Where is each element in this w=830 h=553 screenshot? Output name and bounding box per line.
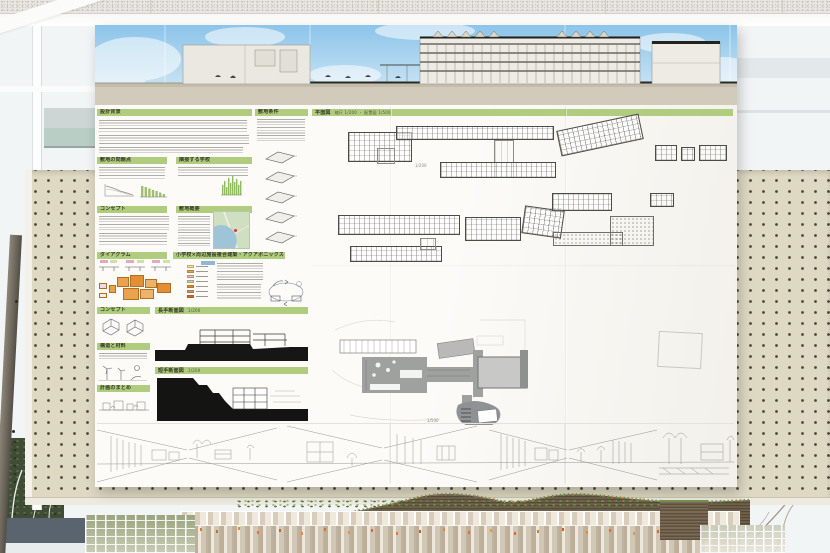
ceiling-tile-gap (605, 0, 606, 14)
section-title: 短手断面図 (158, 368, 184, 374)
diagram-block (123, 288, 139, 300)
floor-plan (420, 238, 436, 250)
pole-bolt (15, 300, 18, 303)
floor-plan (338, 215, 460, 235)
section-header-cross-section: 短手断面図1/200 (155, 367, 308, 374)
floor-plan-small (650, 193, 674, 207)
pegboard-left-edge (25, 170, 32, 505)
floor-plan-grid (553, 232, 623, 246)
plan-scale-subtitle: 縮尺 1/200 ・ 配置図 1/500 (335, 110, 391, 115)
section-title: 敷地条件 (258, 109, 279, 115)
legend-color-chip (187, 280, 194, 283)
environment-sketches (99, 363, 147, 382)
legend-color-chip (187, 290, 194, 293)
interior-perspective-strip (97, 423, 734, 483)
presentation-board: 設計背景 敷地条件 平面図縮尺 1/200 ・ 配置図 1/500 敷地の問題点… (95, 25, 737, 487)
legend-label-line (196, 281, 208, 282)
body-text (99, 135, 249, 144)
body-text (99, 147, 243, 155)
legend-label-line (196, 296, 208, 297)
plan-scale-label: 1/200 (415, 164, 427, 168)
legend-color-chip (187, 295, 194, 298)
right-wall-band (735, 58, 830, 78)
model-roof-planting (235, 499, 705, 508)
legend-row (187, 290, 211, 293)
section-header-concept: コンセプト (97, 206, 167, 213)
ceiling-tile-gap (378, 0, 379, 14)
hillside-section-drawing (155, 376, 308, 423)
legend-color-chip (187, 275, 194, 278)
right-window-frame (735, 110, 830, 113)
section-title: 計画のまとめ (100, 385, 131, 391)
detail-sketches (97, 259, 173, 272)
ceiling-tiles (0, 0, 830, 14)
floor-plan-small (681, 147, 695, 161)
section-title: 小学校×周辺施設複合建築・アクアポニックス (176, 252, 284, 258)
body-text (99, 233, 167, 245)
section-title: 構造と材料 (100, 343, 126, 349)
long-section-drawing (155, 316, 308, 364)
body-text (99, 167, 165, 180)
legend-label-line (196, 286, 208, 287)
site-marker (234, 229, 237, 232)
section-title: 設計背景 (100, 109, 121, 115)
outside-building-glass (44, 128, 95, 146)
diagram-block (145, 279, 157, 288)
section-title: 敷地の問題点 (100, 157, 131, 163)
poster-seam (312, 265, 735, 266)
section-header-program: 小学校×周辺施設複合建築・アクアポニックス (173, 252, 285, 259)
floor-plan (465, 217, 521, 241)
elevation-drawing (95, 25, 737, 105)
architecture-model (85, 483, 800, 553)
outside-building (44, 108, 95, 128)
photo-scene: 設計背景 敷地条件 平面図縮尺 1/200 ・ 配置図 1/500 敷地の問題点… (0, 0, 830, 553)
body-text (99, 353, 147, 361)
axon-sketches (99, 315, 147, 340)
window-transom (0, 86, 95, 92)
ceiling-tile-gap (150, 0, 151, 14)
body-text (99, 216, 169, 230)
model-window-row (180, 525, 740, 553)
body-text (217, 263, 263, 281)
body-text (178, 216, 210, 246)
section-header-summary: 計画のまとめ (97, 385, 150, 392)
section-header-concept-model: コンセプト (97, 307, 150, 314)
outside-building-edge (44, 146, 95, 148)
section-title: コンセプト (100, 206, 126, 212)
legend-row (187, 285, 211, 288)
program-diagram (99, 273, 175, 307)
section-title: 平面図 (315, 110, 331, 116)
section-title: 隣接する学校 (179, 157, 210, 163)
body-text (217, 284, 261, 300)
section-header-site-issues: 敷地の問題点 (97, 157, 167, 164)
section-header-site-conditions: 敷地条件 (255, 109, 308, 116)
model-building-facade (180, 511, 740, 553)
site-location-map (213, 211, 250, 249)
floor-plan (377, 148, 395, 164)
model-pergola-right (700, 525, 785, 553)
legend-color-chip (187, 265, 194, 268)
window-sill (0, 543, 93, 553)
body-text (257, 119, 305, 141)
line-chart (103, 183, 135, 198)
floor-plan (396, 126, 554, 140)
diagram-legend (187, 265, 211, 301)
sketch-outline-square (657, 331, 703, 369)
floor-stack-diagrams (263, 147, 297, 247)
bar-chart-declining (140, 184, 168, 198)
section-scale: 1/200 (188, 308, 201, 313)
legend-label-line (196, 266, 208, 267)
legend-row (187, 280, 211, 283)
legend-color-chip (187, 285, 194, 288)
diagram-block (130, 275, 144, 287)
section-header-adjacent-school: 隣接する学校 (176, 157, 252, 164)
site-plan-drawing (330, 310, 540, 425)
floor-plan-wing (556, 114, 644, 157)
diagram-block (99, 293, 107, 298)
summary-sketch-strip (99, 394, 149, 416)
section-header-floor-plans: 平面図縮尺 1/200 ・ 配置図 1/500 (312, 109, 733, 116)
body-text (99, 120, 247, 132)
legend-row (187, 270, 211, 273)
legend-color-chip (187, 270, 194, 273)
ceiling-tile-gap (782, 0, 783, 14)
section-title: ダイアグラム (100, 252, 131, 258)
legend-label-line (196, 276, 208, 277)
section-header-long-section: 長手断面図1/200 (155, 307, 308, 314)
section-scale: 1/200 (188, 368, 201, 373)
diagram-block (99, 283, 107, 289)
model-figures (200, 528, 202, 531)
plan-scale-label: 1/500 (550, 209, 562, 213)
legend-row (187, 265, 211, 268)
legend-label-line (196, 291, 208, 292)
aquaponics-diagram (265, 276, 307, 306)
diagram-block (140, 289, 154, 299)
legend-label-line (196, 271, 208, 272)
aquaponics-label-chip (201, 261, 215, 265)
diagram-block (157, 283, 171, 293)
floor-plan-small (655, 145, 677, 161)
section-title: 長手断面図 (158, 308, 184, 314)
legend-row (187, 295, 211, 298)
bar-chart-green (221, 173, 243, 196)
floor-plan-small (699, 145, 727, 161)
pole-bolt (12, 430, 15, 433)
section-title: コンセプト (100, 307, 126, 313)
floor-plan (440, 162, 556, 178)
legend-row (187, 275, 211, 278)
section-header-diagram: ダイアグラム (97, 252, 167, 259)
window-sill-dark (0, 518, 93, 544)
section-header-structure: 構造と材料 (97, 343, 150, 350)
section-header-background: 設計背景 (97, 109, 252, 116)
diagram-block (117, 277, 129, 287)
section-title: 敷地概要 (179, 206, 200, 212)
model-pergola-left (85, 515, 195, 553)
diagram-block (109, 285, 116, 293)
